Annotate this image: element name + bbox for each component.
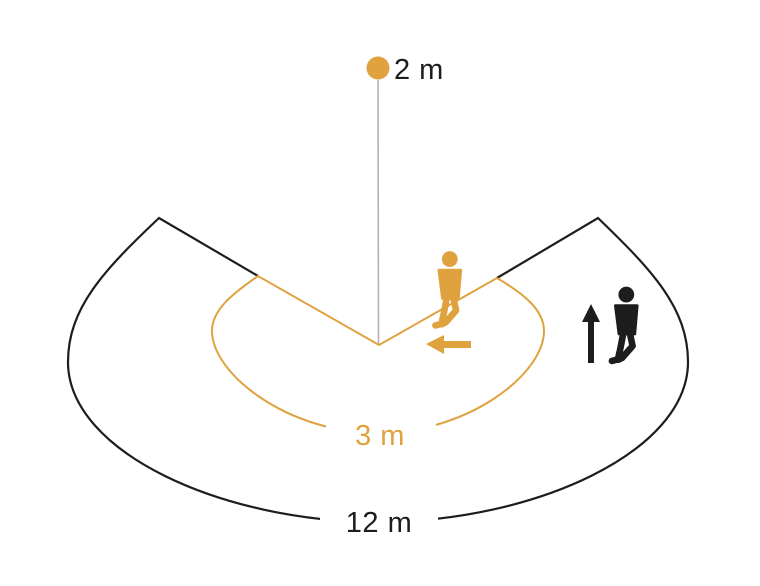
outer-range-label: 12 m <box>346 507 412 539</box>
walking-person-icon <box>612 287 637 361</box>
mounting-height-line <box>378 80 379 344</box>
sensor-dot-icon <box>367 57 390 80</box>
arrow-up-icon <box>582 304 600 363</box>
detection-range-diagram: 2 m 3 m 12 m <box>0 0 760 586</box>
arrow-left-icon <box>426 335 471 354</box>
diagram-canvas: 2 m 3 m 12 m <box>0 0 760 586</box>
mounting-height-label: 2 m <box>394 54 444 86</box>
inner-range-label: 3 m <box>355 420 405 452</box>
walking-person-icon <box>435 251 460 325</box>
